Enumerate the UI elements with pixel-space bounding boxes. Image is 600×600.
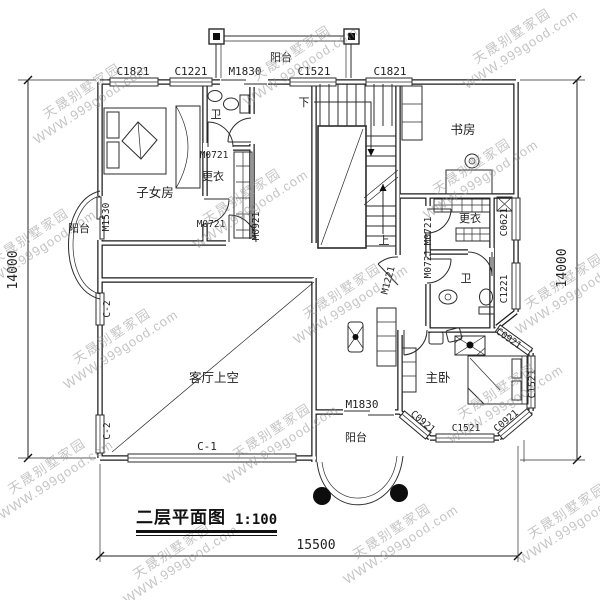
- plan-label: C1221: [174, 65, 207, 78]
- closet-right-bottom: [456, 228, 490, 241]
- window-c1521-bottom: [436, 434, 494, 442]
- hall-cabinet: [377, 308, 396, 366]
- door-master-entry: [401, 326, 427, 355]
- hall-tv: [348, 322, 363, 352]
- title-text: 二层平面图: [136, 503, 226, 528]
- plan-label: C-1: [197, 440, 217, 453]
- plan-label: M0721: [197, 219, 226, 230]
- study-bookcase: [402, 86, 422, 140]
- master-bed: [468, 356, 528, 404]
- plan-label: 子女房: [136, 185, 174, 200]
- plan-label: M1830: [345, 398, 378, 411]
- title-scale: 1:100: [235, 512, 277, 528]
- plan-label: 卫: [211, 108, 222, 121]
- plan-label: M1830: [228, 65, 261, 78]
- plan-label: 阳台: [270, 50, 292, 64]
- title-underline-thin: [136, 535, 277, 536]
- title-underline-thick: [136, 530, 277, 533]
- floor-plan-page: C1821C1221M1830阳台C1521C1821阳台M1530C-2C-2…: [0, 0, 600, 600]
- drawing-title: 二层平面图 1:100: [136, 503, 277, 536]
- bath-left-toilet: [224, 95, 250, 113]
- plan-label: 书房: [450, 122, 475, 137]
- window-c1221-right: [512, 263, 520, 309]
- plan-label: C0621: [499, 207, 510, 236]
- window-c1221-top: [170, 78, 212, 86]
- doors: [95, 77, 494, 417]
- plan-label: C0921: [494, 326, 524, 352]
- plan-label: M0721: [200, 150, 229, 161]
- children-wardrobe: [176, 106, 200, 188]
- stairs: [314, 84, 398, 248]
- plan-labels: C1821C1221M1830阳台C1521C1821阳台M1530C-2C-2…: [6, 50, 570, 553]
- children-bed: [104, 108, 166, 174]
- plan-label: 更衣: [202, 169, 224, 183]
- balcony-bottom: [313, 456, 408, 505]
- plan-label: 主卧: [425, 370, 450, 385]
- door-m1830-top: [220, 77, 268, 87]
- plan-label: C1821: [373, 65, 406, 78]
- study-desk: [446, 154, 492, 194]
- plan-label: M1530: [101, 202, 112, 231]
- window-c0621-right: [512, 198, 520, 240]
- plan-label: M0921: [251, 211, 262, 240]
- bath-left-sink: [208, 91, 222, 102]
- plan-label: 卫: [461, 272, 472, 285]
- plan-label: 阳台: [68, 221, 90, 235]
- void-diagonal: [112, 282, 314, 452]
- plan-label: M1221: [380, 265, 398, 296]
- column: [390, 484, 408, 502]
- plan-label: 更衣: [459, 211, 481, 225]
- window-c1821-top-left: [110, 78, 158, 86]
- plan-label: 15500: [296, 538, 335, 553]
- column: [313, 487, 331, 505]
- plan-label: 14000: [6, 250, 21, 289]
- plan-label: C1821: [116, 65, 149, 78]
- plan-label: M0721: [423, 216, 434, 245]
- bath-right-sink: [439, 290, 457, 304]
- plan-label: 阳台: [345, 430, 367, 444]
- floor-plan-canvas: C1821C1221M1830阳台C1521C1821阳台M1530C-2C-2…: [0, 0, 600, 600]
- master-table: [455, 336, 485, 355]
- window-c1-bottom: [128, 454, 296, 462]
- plan-label: C1521: [452, 423, 481, 434]
- plan-label: C1521: [297, 65, 330, 78]
- plan-label: M0721: [423, 249, 434, 278]
- plan-label: 上: [379, 234, 390, 247]
- plan-label: 客厅上空: [189, 370, 239, 385]
- plan-label: C-2: [102, 422, 113, 439]
- plan-label: C1221: [499, 274, 510, 303]
- plan-label: C-2: [102, 300, 113, 317]
- closet-right-top: [434, 199, 490, 212]
- plan-label: 14000: [555, 248, 570, 287]
- plan-label: C1521: [527, 369, 538, 398]
- plan-label: 下: [299, 96, 310, 109]
- window-c1821-top-right: [366, 78, 412, 86]
